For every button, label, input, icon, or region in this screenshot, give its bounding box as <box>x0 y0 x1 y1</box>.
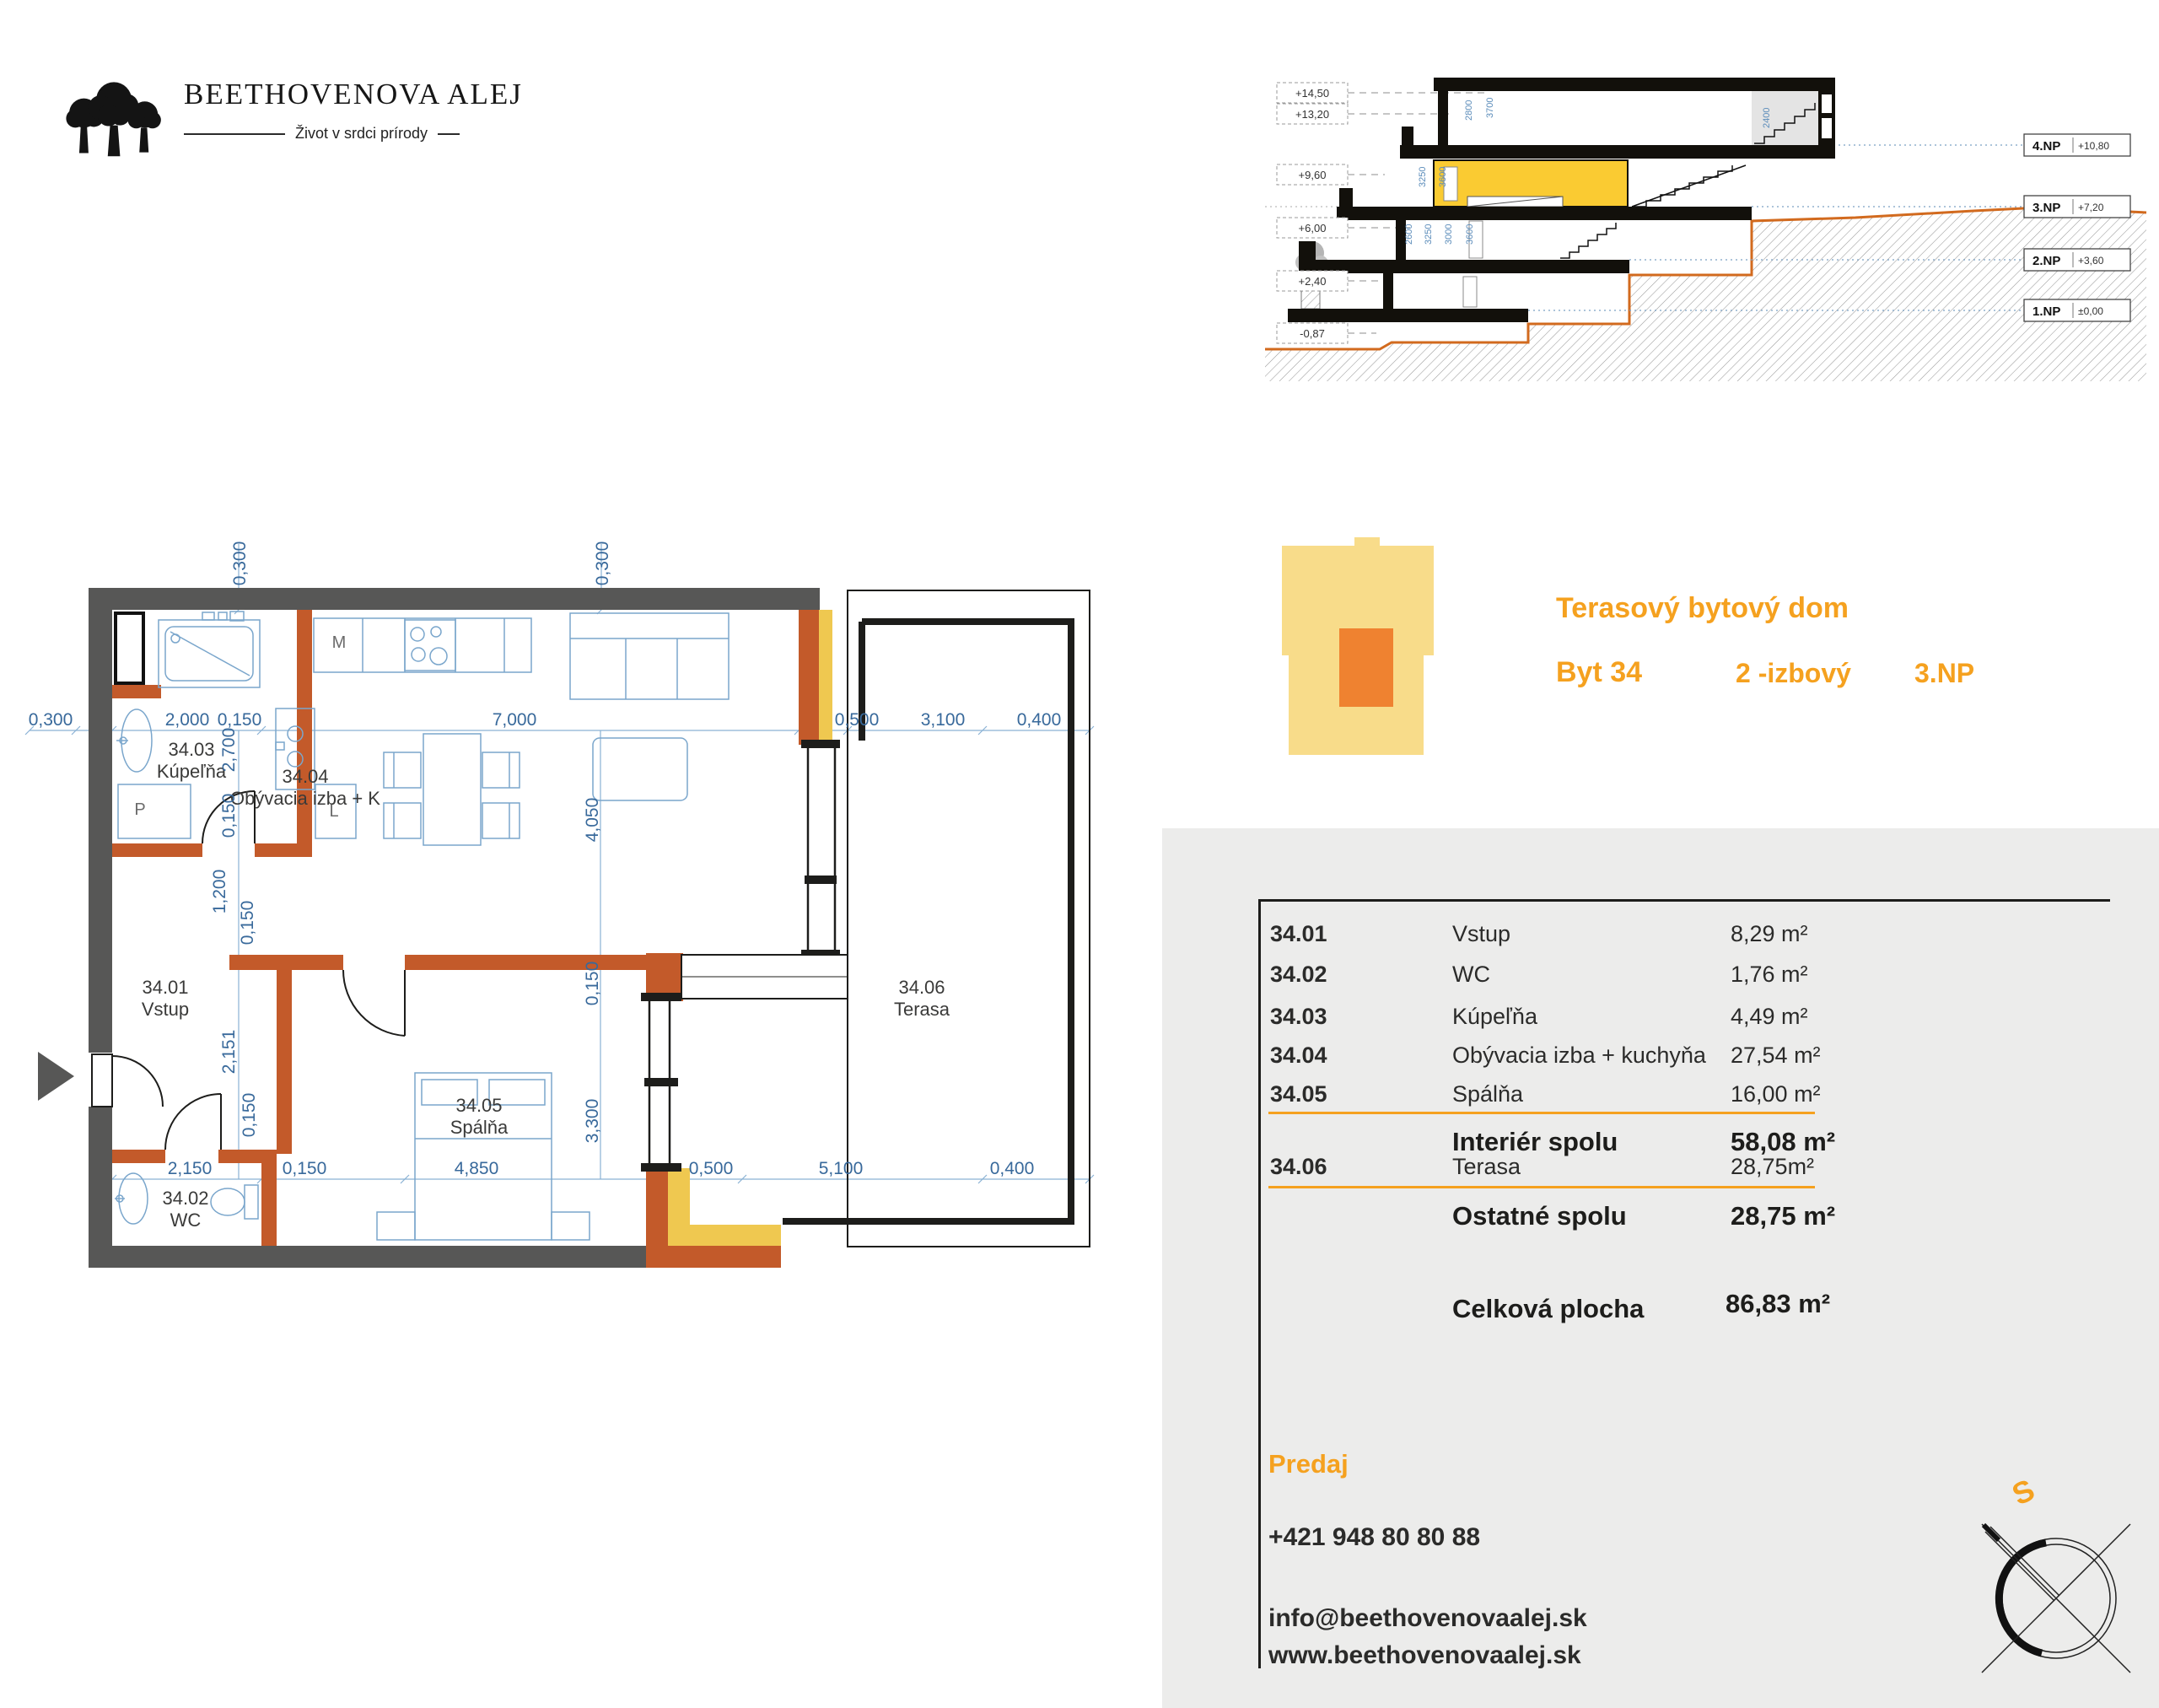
svg-text:3250: 3250 <box>1418 167 1428 187</box>
room-label-name: Obývacia izba + K <box>230 788 380 809</box>
facade-window <box>1822 118 1832 138</box>
tagline-rule-right <box>438 133 460 135</box>
svg-text:1,200: 1,200 <box>210 870 229 914</box>
page: BEETHOVENOVA ALEJ Život v srdci prírody <box>0 0 2159 1708</box>
room-label-name: WC <box>170 1210 202 1231</box>
svg-text:0,300: 0,300 <box>593 541 612 586</box>
svg-text:-0,87: -0,87 <box>1300 327 1325 340</box>
svg-text:0,150: 0,150 <box>283 1159 327 1178</box>
room-label-name: Vstup <box>142 999 189 1020</box>
row-id: 34.03 <box>1270 1004 1327 1030</box>
room-label-name: Terasa <box>894 999 950 1020</box>
svg-text:0,150: 0,150 <box>240 1093 259 1138</box>
svg-text:2,151: 2,151 <box>219 1030 239 1075</box>
divider-interior <box>1268 1112 1815 1114</box>
svg-text:2600: 2600 <box>1404 224 1414 245</box>
flat-number: Byt 34 <box>1556 656 1642 689</box>
svg-text:+9,60: +9,60 <box>1299 169 1327 181</box>
svg-text:0,300: 0,300 <box>29 710 73 730</box>
svg-text:0,300: 0,300 <box>230 541 250 586</box>
building-section-diagram: 2800 3700 3250 3600 2400 2600 3250 3000 … <box>1265 46 2159 401</box>
letter-p: P <box>134 800 145 819</box>
building-footprint-icon <box>1280 536 1440 759</box>
total-value: 86,83 m² <box>1726 1289 1830 1319</box>
svg-text:2800: 2800 <box>1464 100 1474 121</box>
svg-text:±0,00: ±0,00 <box>2078 305 2103 317</box>
wardrobe-p <box>118 784 191 838</box>
svg-text:+14,50: +14,50 <box>1295 87 1329 100</box>
svg-text:2400: 2400 <box>1762 108 1772 128</box>
room-label-name: Spálňa <box>450 1117 509 1138</box>
row-id: 34.02 <box>1270 962 1327 988</box>
svg-text:0,500: 0,500 <box>689 1159 734 1178</box>
furniture <box>115 612 729 1240</box>
other-total-value: 28,75 m² <box>1731 1201 1835 1231</box>
row-id: 34.04 <box>1270 1043 1327 1069</box>
logo-title: BEETHOVENOVA ALEJ <box>184 78 523 111</box>
entrance-arrow-icon <box>38 1052 74 1101</box>
row-area: 16,00 m² <box>1731 1081 1821 1107</box>
room-label-id: 34.02 <box>162 1188 208 1209</box>
highlighted-unit-3np <box>1434 160 1628 207</box>
svg-text:3600: 3600 <box>1465 224 1475 245</box>
svg-text:+10,80: +10,80 <box>2078 140 2109 152</box>
logo-tagline: Život v srdci prírody <box>184 125 523 143</box>
room-label-id: 34.01 <box>142 977 188 998</box>
row-id: 34.05 <box>1270 1081 1327 1107</box>
svg-text:0,150: 0,150 <box>583 962 602 1006</box>
other-total-label: Ostatné spolu <box>1452 1201 1627 1231</box>
svg-text:3700: 3700 <box>1485 98 1495 118</box>
svg-text:0,400: 0,400 <box>1017 710 1062 730</box>
tagline-rule-left <box>184 133 285 135</box>
svg-text:3250: 3250 <box>1424 224 1434 245</box>
svg-text:0,500: 0,500 <box>835 710 880 730</box>
row-name: Kúpeľňa <box>1452 1004 1537 1030</box>
phone-number[interactable]: +421 948 80 80 88 <box>1268 1523 1480 1552</box>
svg-text:3,300: 3,300 <box>583 1099 602 1144</box>
closet <box>116 613 143 683</box>
facade-window <box>1822 94 1832 113</box>
svg-text:0,150: 0,150 <box>238 901 257 946</box>
row-name: Obývacia izba + kuchyňa <box>1452 1043 1706 1069</box>
logo: BEETHOVENOVA ALEJ Život v srdci prírody <box>61 66 523 160</box>
svg-text:+6,00: +6,00 <box>1299 222 1327 234</box>
svg-text:+3,60: +3,60 <box>2078 255 2104 267</box>
svg-text:1.NP: 1.NP <box>2032 304 2060 319</box>
total-label: Celková plocha <box>1452 1294 1644 1324</box>
svg-text:5,100: 5,100 <box>819 1159 864 1178</box>
room-label-id: 34.06 <box>898 977 945 998</box>
room-count: 2 -izbový <box>1736 658 1851 689</box>
table-border-top <box>1258 899 2110 902</box>
letter-m: M <box>332 633 347 652</box>
row-name: Vstup <box>1452 921 1510 947</box>
svg-text:2,150: 2,150 <box>168 1159 213 1178</box>
row-id: 34.06 <box>1270 1154 1327 1180</box>
svg-text:3.NP: 3.NP <box>2032 201 2060 215</box>
svg-text:7,000: 7,000 <box>493 710 537 730</box>
svg-text:2,000: 2,000 <box>165 710 210 730</box>
svg-text:0,150: 0,150 <box>219 794 239 838</box>
table-border-left <box>1258 899 1261 1668</box>
compass-icon: S <box>1973 1466 2151 1702</box>
unit-location-marker <box>1339 628 1393 707</box>
svg-text:3,100: 3,100 <box>921 710 966 730</box>
svg-text:2,700: 2,700 <box>219 728 239 773</box>
interior-total-value: 58,08 m² <box>1731 1127 1835 1157</box>
svg-text:+2,40: +2,40 <box>1299 275 1327 288</box>
row-area: 4,49 m² <box>1731 1004 1808 1030</box>
svg-text:0,400: 0,400 <box>990 1159 1035 1178</box>
compass-south-label: S <box>2006 1472 2039 1511</box>
svg-text:3600: 3600 <box>1438 167 1448 187</box>
row-area: 28,75m² <box>1731 1154 1814 1180</box>
svg-text:+13,20: +13,20 <box>1295 108 1329 121</box>
svg-text:4,850: 4,850 <box>455 1159 499 1178</box>
svg-text:4.NP: 4.NP <box>2032 139 2060 154</box>
divider-other <box>1268 1186 1815 1188</box>
row-area: 1,76 m² <box>1731 962 1808 988</box>
email-link[interactable]: info@beethovenovaalej.sk <box>1268 1604 1587 1633</box>
row-name: WC <box>1452 962 1490 988</box>
row-id: 34.01 <box>1270 921 1327 947</box>
letter-l: L <box>329 802 338 821</box>
svg-text:0,150: 0,150 <box>218 710 262 730</box>
sales-heading: Predaj <box>1268 1449 1349 1479</box>
room-label-id: 34.03 <box>168 739 214 760</box>
website-link[interactable]: www.beethovenovaalej.sk <box>1268 1641 1581 1670</box>
svg-text:2.NP: 2.NP <box>2032 254 2060 268</box>
room-label-id: 34.05 <box>455 1095 502 1116</box>
building-type-title: Terasový bytový dom <box>1556 592 1849 625</box>
row-area: 27,54 m² <box>1731 1043 1821 1069</box>
row-name: Terasa <box>1452 1154 1521 1180</box>
svg-text:3000: 3000 <box>1444 224 1454 245</box>
interior-total-label: Interiér spolu <box>1452 1127 1618 1157</box>
door-1np <box>1463 277 1477 307</box>
tagline-text: Život v srdci prírody <box>295 125 428 143</box>
room-label-name: Kúpeľňa <box>157 761 227 782</box>
svg-text:4,050: 4,050 <box>583 798 602 843</box>
floor-number: 3.NP <box>1914 658 1974 689</box>
row-name: Spálňa <box>1452 1081 1523 1107</box>
floor-plan: 34.03 Kúpeľňa 34.01 Vstup 34.02 WC 34.04… <box>0 354 1113 1307</box>
room-label-id: 34.04 <box>282 766 328 787</box>
svg-text:+7,20: +7,20 <box>2078 202 2104 213</box>
trees-logo-icon <box>61 66 169 160</box>
row-area: 8,29 m² <box>1731 921 1808 947</box>
